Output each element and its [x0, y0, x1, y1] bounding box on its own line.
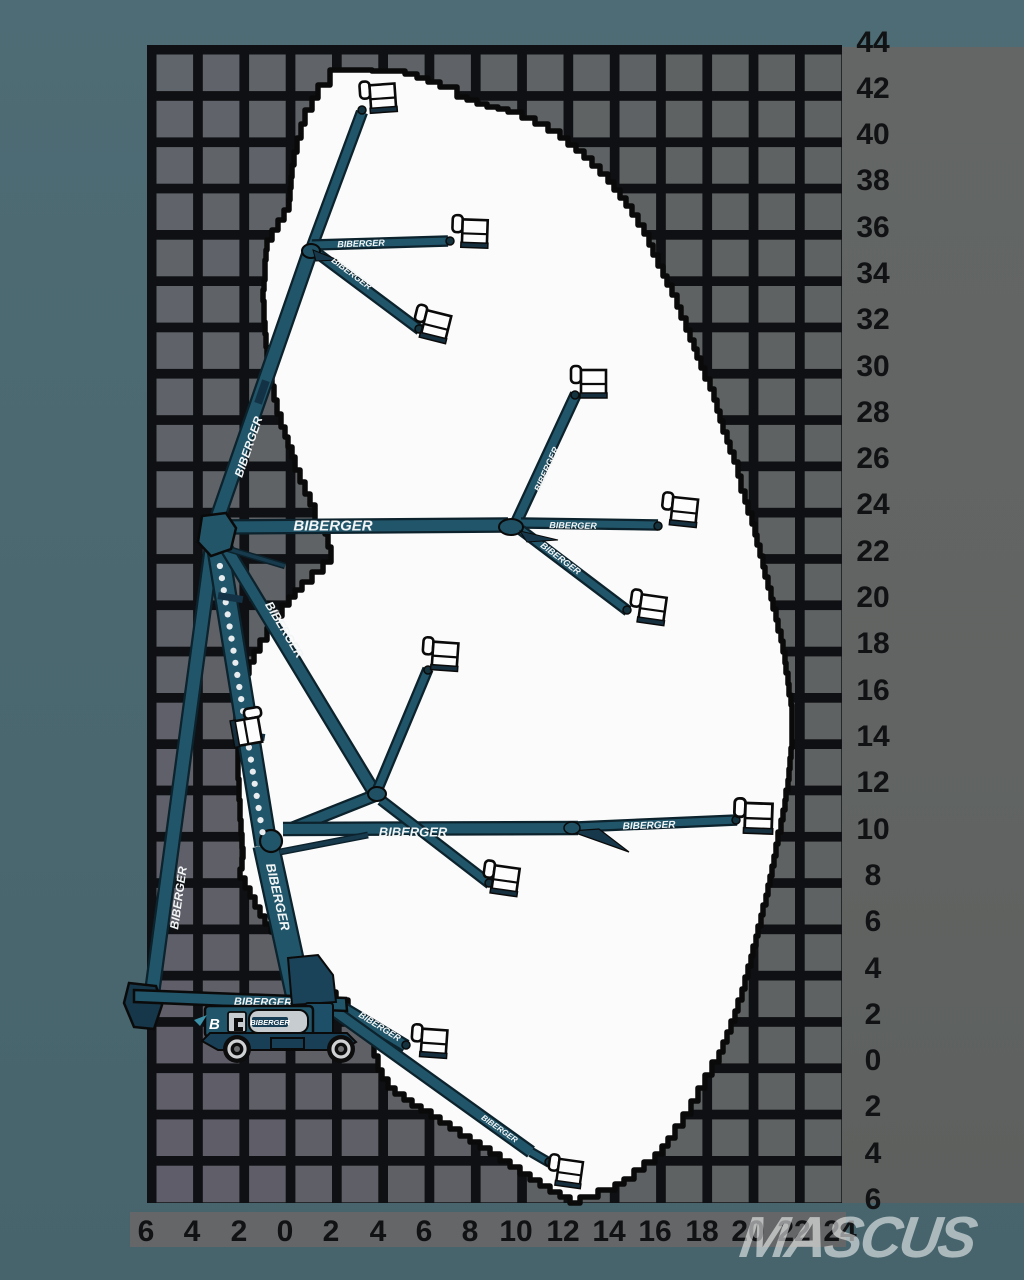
svg-text:4: 4	[370, 1215, 387, 1248]
svg-text:42: 42	[856, 72, 889, 105]
svg-text:8: 8	[462, 1215, 479, 1248]
svg-text:24: 24	[856, 488, 890, 521]
svg-text:B: B	[209, 1016, 220, 1033]
svg-text:14: 14	[856, 720, 890, 753]
svg-text:4: 4	[865, 1137, 882, 1170]
svg-text:6: 6	[865, 905, 882, 938]
svg-text:4: 4	[865, 952, 882, 985]
svg-text:4: 4	[184, 1215, 201, 1248]
svg-text:14: 14	[592, 1215, 626, 1248]
svg-text:30: 30	[856, 350, 889, 383]
svg-text:MASCUS: MASCUS	[736, 1205, 981, 1270]
svg-text:44: 44	[856, 26, 890, 59]
svg-text:BIBERGER: BIBERGER	[379, 825, 448, 840]
svg-text:22: 22	[856, 535, 889, 568]
svg-text:34: 34	[856, 257, 890, 290]
svg-text:38: 38	[856, 164, 889, 197]
svg-text:2: 2	[865, 998, 882, 1031]
svg-text:10: 10	[499, 1215, 532, 1248]
svg-text:BIBERGER: BIBERGER	[622, 820, 676, 833]
svg-text:8: 8	[865, 859, 882, 892]
svg-text:18: 18	[685, 1215, 718, 1248]
svg-text:BIBERGER: BIBERGER	[337, 238, 385, 250]
svg-text:10: 10	[856, 813, 889, 846]
svg-text:2: 2	[231, 1215, 248, 1248]
svg-text:18: 18	[856, 627, 889, 660]
svg-text:BIBERGER: BIBERGER	[250, 1018, 290, 1027]
svg-text:BIBERGER: BIBERGER	[293, 518, 372, 535]
svg-text:12: 12	[856, 766, 889, 799]
svg-text:6: 6	[416, 1215, 433, 1248]
svg-text:26: 26	[856, 442, 889, 475]
svg-text:0: 0	[277, 1215, 294, 1248]
svg-text:BIBERGER: BIBERGER	[549, 520, 597, 531]
svg-text:20: 20	[856, 581, 889, 614]
svg-text:28: 28	[856, 396, 889, 429]
svg-text:32: 32	[856, 303, 889, 336]
svg-text:0: 0	[865, 1044, 882, 1077]
svg-text:6: 6	[138, 1215, 155, 1248]
svg-text:2: 2	[865, 1090, 882, 1123]
svg-text:36: 36	[856, 211, 889, 244]
svg-text:16: 16	[638, 1215, 671, 1248]
svg-text:16: 16	[856, 674, 889, 707]
svg-text:2: 2	[323, 1215, 340, 1248]
svg-text:40: 40	[856, 118, 889, 151]
svg-text:12: 12	[546, 1215, 579, 1248]
